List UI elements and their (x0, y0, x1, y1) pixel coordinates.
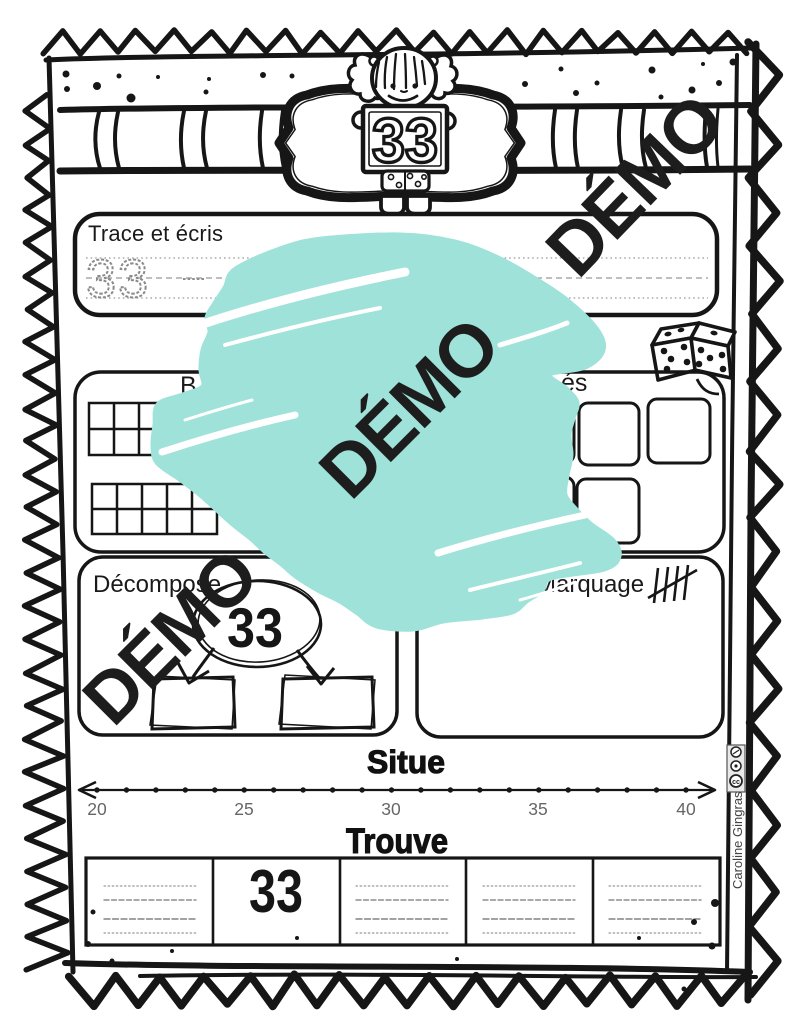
svg-text:25: 25 (234, 799, 253, 819)
svg-text:Situe: Situe (367, 744, 445, 780)
svg-text:cc: cc (732, 779, 740, 786)
svg-text:33: 33 (249, 858, 303, 925)
svg-text:Caroline Gingras: Caroline Gingras (730, 791, 745, 889)
svg-text:35: 35 (528, 799, 547, 819)
svg-text:20: 20 (87, 799, 107, 819)
svg-text:Trace et écris: Trace et écris (88, 221, 223, 246)
svg-text:Trouve: Trouve (346, 822, 448, 861)
svg-text:33: 33 (372, 107, 438, 176)
svg-text:30: 30 (381, 799, 401, 819)
svg-text:40: 40 (676, 799, 696, 819)
svg-text:33: 33 (86, 249, 150, 309)
